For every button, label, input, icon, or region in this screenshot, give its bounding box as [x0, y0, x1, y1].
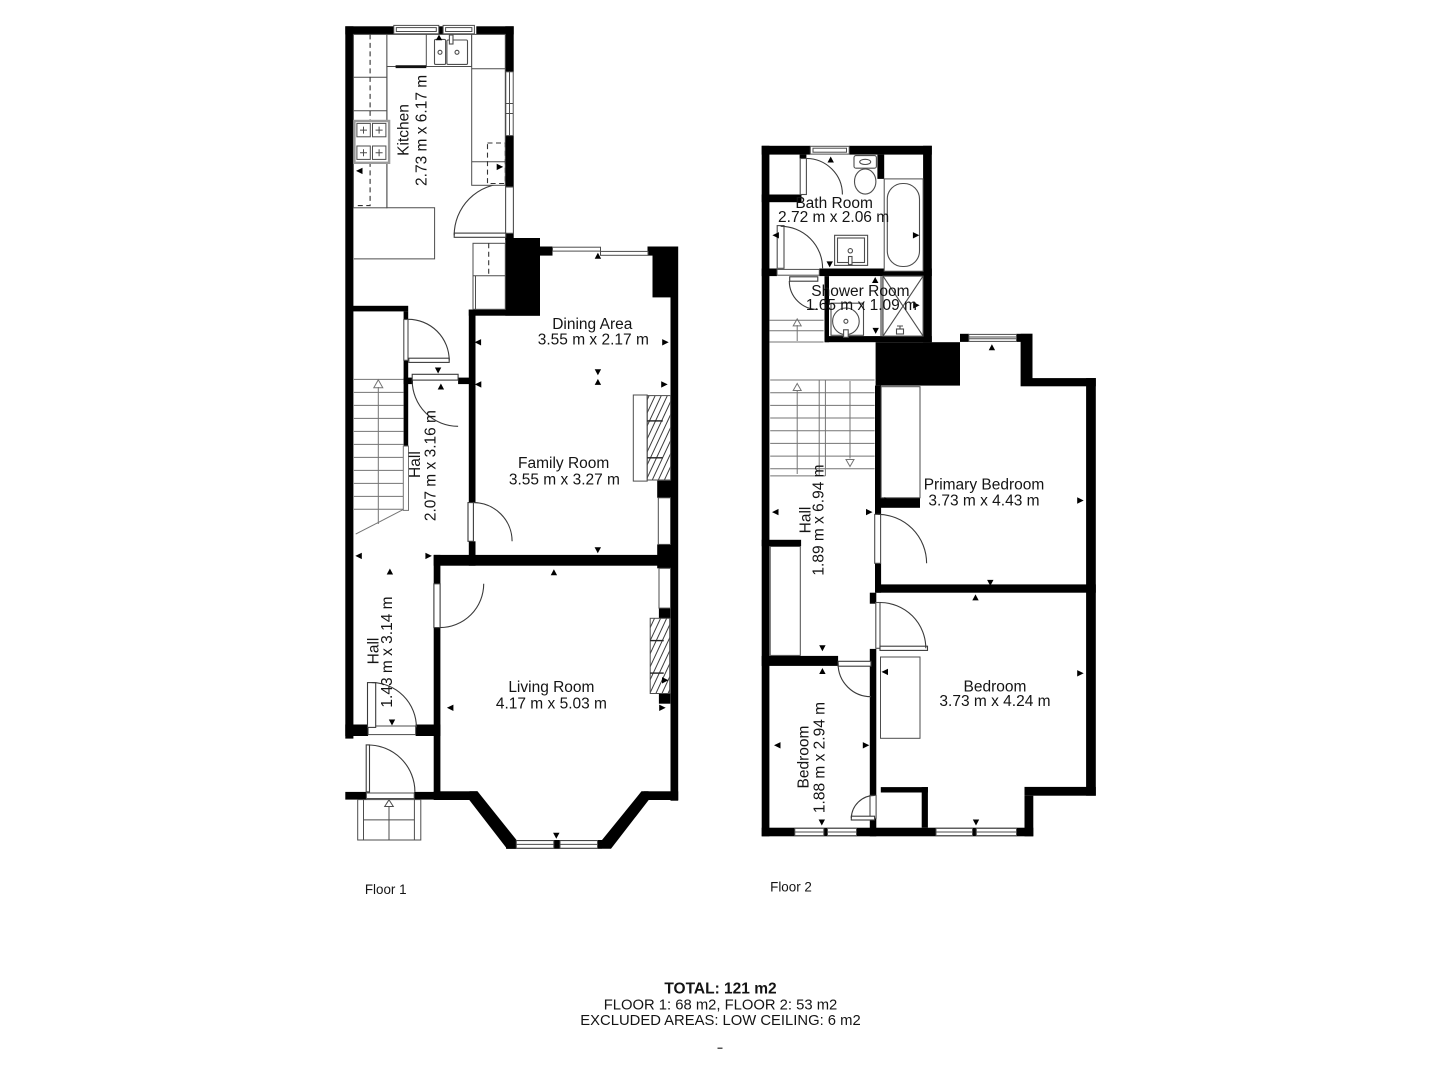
svg-text:2.72 m x 2.06 m: 2.72 m x 2.06 m: [778, 209, 889, 226]
svg-text:2.07 m x 3.16 m: 2.07 m x 3.16 m: [422, 410, 439, 521]
svg-text:Family Room: Family Room: [518, 455, 609, 472]
svg-text:3.73 m x 4.43 m: 3.73 m x 4.43 m: [928, 493, 1039, 510]
svg-text:Kitchen: Kitchen: [395, 104, 412, 156]
svg-text:Bedroom: Bedroom: [796, 726, 813, 789]
svg-text:Floor 1: Floor 1: [365, 882, 407, 897]
svg-text:4.17 m x 5.03 m: 4.17 m x 5.03 m: [496, 695, 607, 712]
svg-text:1.43 m x 3.14 m: 1.43 m x 3.14 m: [379, 596, 396, 707]
svg-text:1.89 m x 6.94 m: 1.89 m x 6.94 m: [811, 464, 828, 575]
svg-text:Living Room: Living Room: [508, 679, 594, 696]
svg-text:TOTAL: 121 m2: TOTAL: 121 m2: [664, 981, 776, 998]
svg-text:1.65 m x 1.09 m: 1.65 m x 1.09 m: [806, 297, 917, 314]
svg-text:3.73 m x 4.24 m: 3.73 m x 4.24 m: [939, 693, 1050, 710]
svg-text:2.73 m x 6.17 m: 2.73 m x 6.17 m: [413, 75, 430, 186]
svg-text:Floor 2: Floor 2: [770, 880, 812, 895]
svg-text:FLOOR 1: 68 m2, FLOOR 2: 53 m2: FLOOR 1: 68 m2, FLOOR 2: 53 m2: [604, 998, 838, 1014]
svg-text:Dining Area: Dining Area: [552, 316, 633, 333]
svg-text:3.55 m x 3.27 m: 3.55 m x 3.27 m: [509, 471, 620, 488]
svg-text:1.88 m x 2.94 m: 1.88 m x 2.94 m: [812, 702, 829, 813]
svg-text:Primary Bedroom: Primary Bedroom: [924, 477, 1045, 494]
svg-text:3.55 m x 2.17 m: 3.55 m x 2.17 m: [538, 332, 649, 349]
svg-text:EXCLUDED AREAS: LOW CEILING: 6: EXCLUDED AREAS: LOW CEILING: 6 m2: [580, 1013, 860, 1029]
